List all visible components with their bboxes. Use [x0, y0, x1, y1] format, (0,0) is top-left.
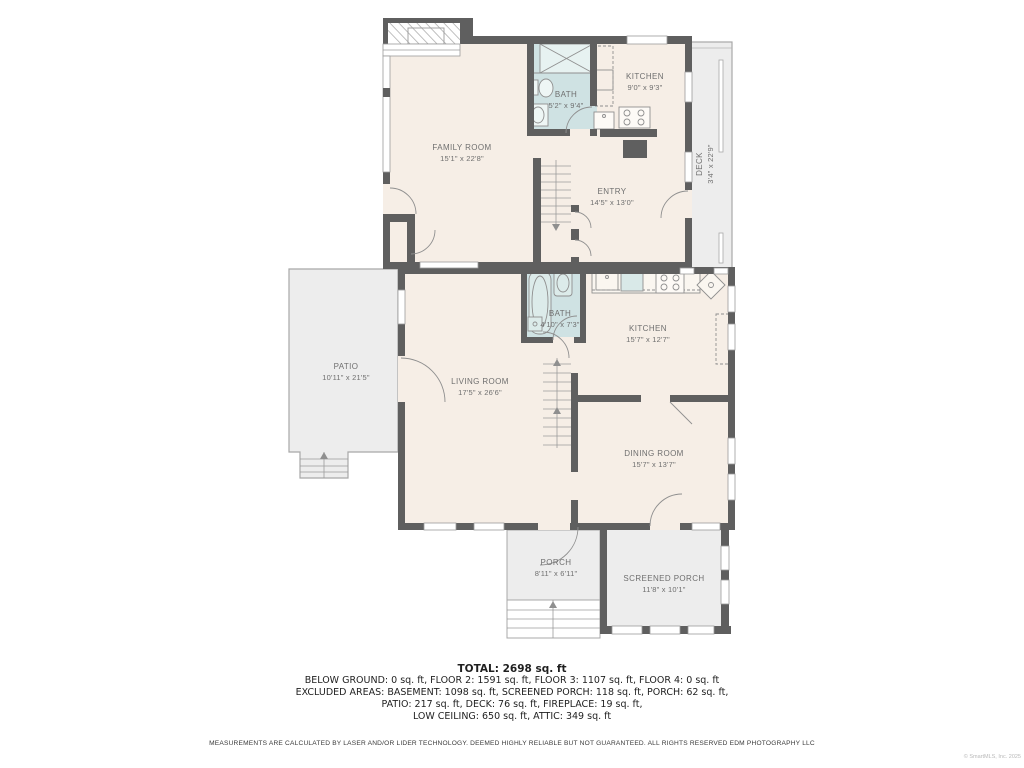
- room-dims: 14'5" x 13'0": [590, 198, 634, 207]
- room-name: KITCHEN: [626, 72, 664, 82]
- room-name: BATH: [540, 309, 579, 319]
- room-name: PATIO: [322, 362, 370, 372]
- room-label-entry: ENTRY 14'5" x 13'0": [590, 187, 634, 207]
- room-name: ENTRY: [590, 187, 634, 197]
- room-label-kitchen-main: KITCHEN 15'7" x 12'7": [626, 324, 670, 344]
- summary-line-4: LOW CEILING: 650 sq. ft, ATTIC: 349 sq. …: [0, 711, 1024, 723]
- total-area: TOTAL: 2698 sq. ft: [0, 663, 1024, 675]
- watermark-text: © SmartMLS, Inc. 2025: [964, 754, 1021, 760]
- room-name: BATH: [549, 90, 584, 100]
- room-dims: 8'11" x 6'11": [535, 569, 578, 578]
- room-label-porch: PORCH 8'11" x 6'11": [535, 558, 578, 578]
- room-dims: 3'4" x 22'9": [706, 144, 715, 183]
- room-label-deck: DECK 3'4" x 22'9": [695, 144, 715, 183]
- room-dims: 11'8" x 10'1": [623, 585, 704, 594]
- room-dims: 9'0" x 9'3": [626, 83, 664, 92]
- room-name: KITCHEN: [626, 324, 670, 334]
- room-label-bath-upper: BATH 5'2" x 9'4": [549, 90, 584, 110]
- room-label-patio: PATIO 10'11" x 21'5": [322, 362, 370, 382]
- room-label-dining-room: DINING ROOM 15'7" x 13'7": [624, 449, 684, 469]
- floorplan-canvas: [0, 0, 1024, 768]
- summary-line-3: PATIO: 217 sq. ft, DECK: 76 sq. ft, FIRE…: [0, 699, 1024, 711]
- disclaimer-text: MEASUREMENTS ARE CALCULATED BY LASER AND…: [0, 740, 1024, 747]
- summary-line-2: EXCLUDED AREAS: BASEMENT: 1098 sq. ft, S…: [0, 687, 1024, 699]
- room-name: DINING ROOM: [624, 449, 684, 459]
- room-label-screened-porch: SCREENED PORCH 11'8" x 10'1": [623, 574, 704, 594]
- summary-line-1: BELOW GROUND: 0 sq. ft, FLOOR 2: 1591 sq…: [0, 675, 1024, 687]
- room-dims: 4'10" x 7'3": [540, 320, 579, 329]
- room-dims: 5'2" x 9'4": [549, 101, 584, 110]
- room-dims: 15'1" x 22'8": [432, 154, 491, 163]
- room-label-kitchen-upper: KITCHEN 9'0" x 9'3": [626, 72, 664, 92]
- room-name: DECK: [695, 144, 705, 183]
- room-label-family-room: FAMILY ROOM 15'1" x 22'8": [432, 143, 491, 163]
- room-dims: 15'7" x 13'7": [624, 460, 684, 469]
- room-dims: 15'7" x 12'7": [626, 335, 670, 344]
- room-name: LIVING ROOM: [451, 377, 509, 387]
- area-summary: TOTAL: 2698 sq. ft BELOW GROUND: 0 sq. f…: [0, 663, 1024, 723]
- room-name: SCREENED PORCH: [623, 574, 704, 584]
- room-label-living-room: LIVING ROOM 17'5" x 26'6": [451, 377, 509, 397]
- room-label-bath-main: BATH 4'10" x 7'3": [540, 309, 579, 329]
- room-dims: 17'5" x 26'6": [451, 388, 509, 397]
- floorplan-page: FAMILY ROOM 15'1" x 22'8" BATH 5'2" x 9'…: [0, 0, 1024, 768]
- room-dims: 10'11" x 21'5": [322, 373, 370, 382]
- room-name: FAMILY ROOM: [432, 143, 491, 153]
- room-name: PORCH: [535, 558, 578, 568]
